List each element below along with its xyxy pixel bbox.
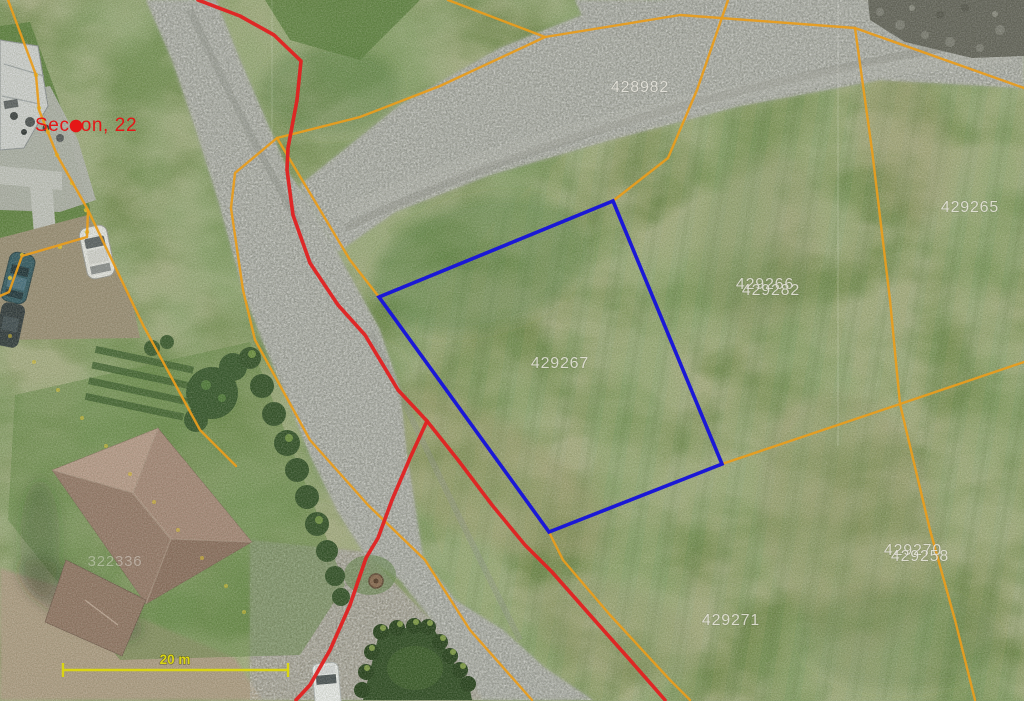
survey-annotation: Seceon, 22 xyxy=(35,115,137,136)
building-label: 322336 xyxy=(88,553,143,570)
image-grain-light xyxy=(0,0,1024,701)
parcel-label: 429271 xyxy=(702,612,760,629)
parcel-label: 429282 xyxy=(742,282,800,299)
scale-bar-label: 20 m xyxy=(160,652,191,667)
survey-annotation-label: Seceon, 22 xyxy=(35,115,137,136)
map-viewport[interactable]: 428982 429265 429266 429282 429267 42927… xyxy=(0,0,1024,701)
parcel-label: 429265 xyxy=(941,199,999,216)
parcel-label-selected: 429267 xyxy=(531,355,589,372)
parcel-label: 429258 xyxy=(891,548,949,565)
survey-point-marker xyxy=(70,120,83,133)
parcel-label: 428982 xyxy=(611,79,669,96)
aerial-map: 428982 429265 429266 429282 429267 42927… xyxy=(0,0,1024,701)
